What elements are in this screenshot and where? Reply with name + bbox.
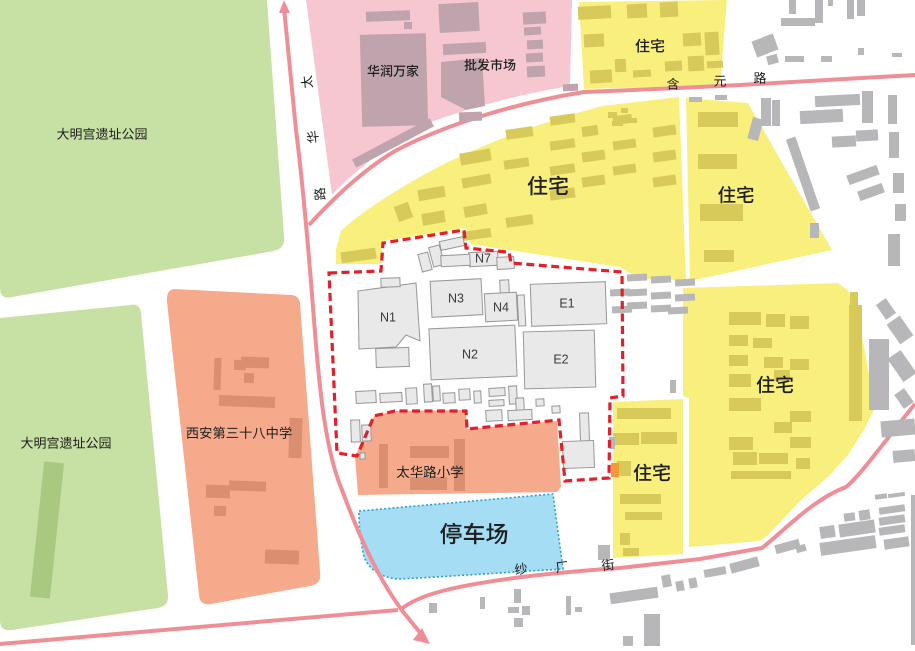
svg-text:N1: N1: [380, 310, 396, 324]
svg-text:N2: N2: [462, 347, 478, 361]
svg-text:E1: E1: [559, 296, 574, 310]
svg-text:E2: E2: [553, 352, 568, 366]
svg-text:N3: N3: [448, 291, 464, 305]
svg-text:N4: N4: [493, 300, 509, 314]
svg-text:N7: N7: [475, 251, 491, 265]
